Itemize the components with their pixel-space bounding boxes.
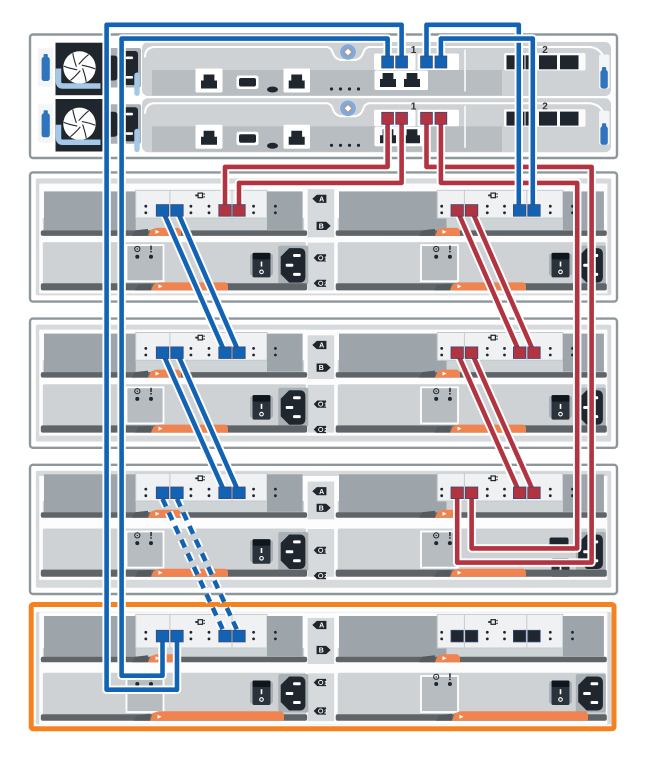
svg-text:B: B (319, 365, 324, 372)
svg-text:A: A (319, 623, 324, 630)
svg-text:2: 2 (324, 428, 327, 434)
svg-text:A: A (319, 489, 324, 496)
svg-text:1: 1 (324, 549, 327, 555)
svg-text:A: A (319, 343, 324, 350)
svg-text:A: A (319, 196, 324, 203)
svg-text:B: B (319, 505, 324, 512)
svg-text:2: 2 (324, 574, 327, 580)
svg-text:1: 1 (324, 403, 327, 409)
svg-text:2: 2 (324, 709, 327, 715)
svg-text:B: B (319, 224, 324, 231)
svg-text:B: B (319, 648, 324, 655)
svg-text:1: 1 (324, 256, 327, 262)
svg-text:1: 1 (324, 681, 327, 687)
svg-text:2: 2 (324, 282, 327, 288)
